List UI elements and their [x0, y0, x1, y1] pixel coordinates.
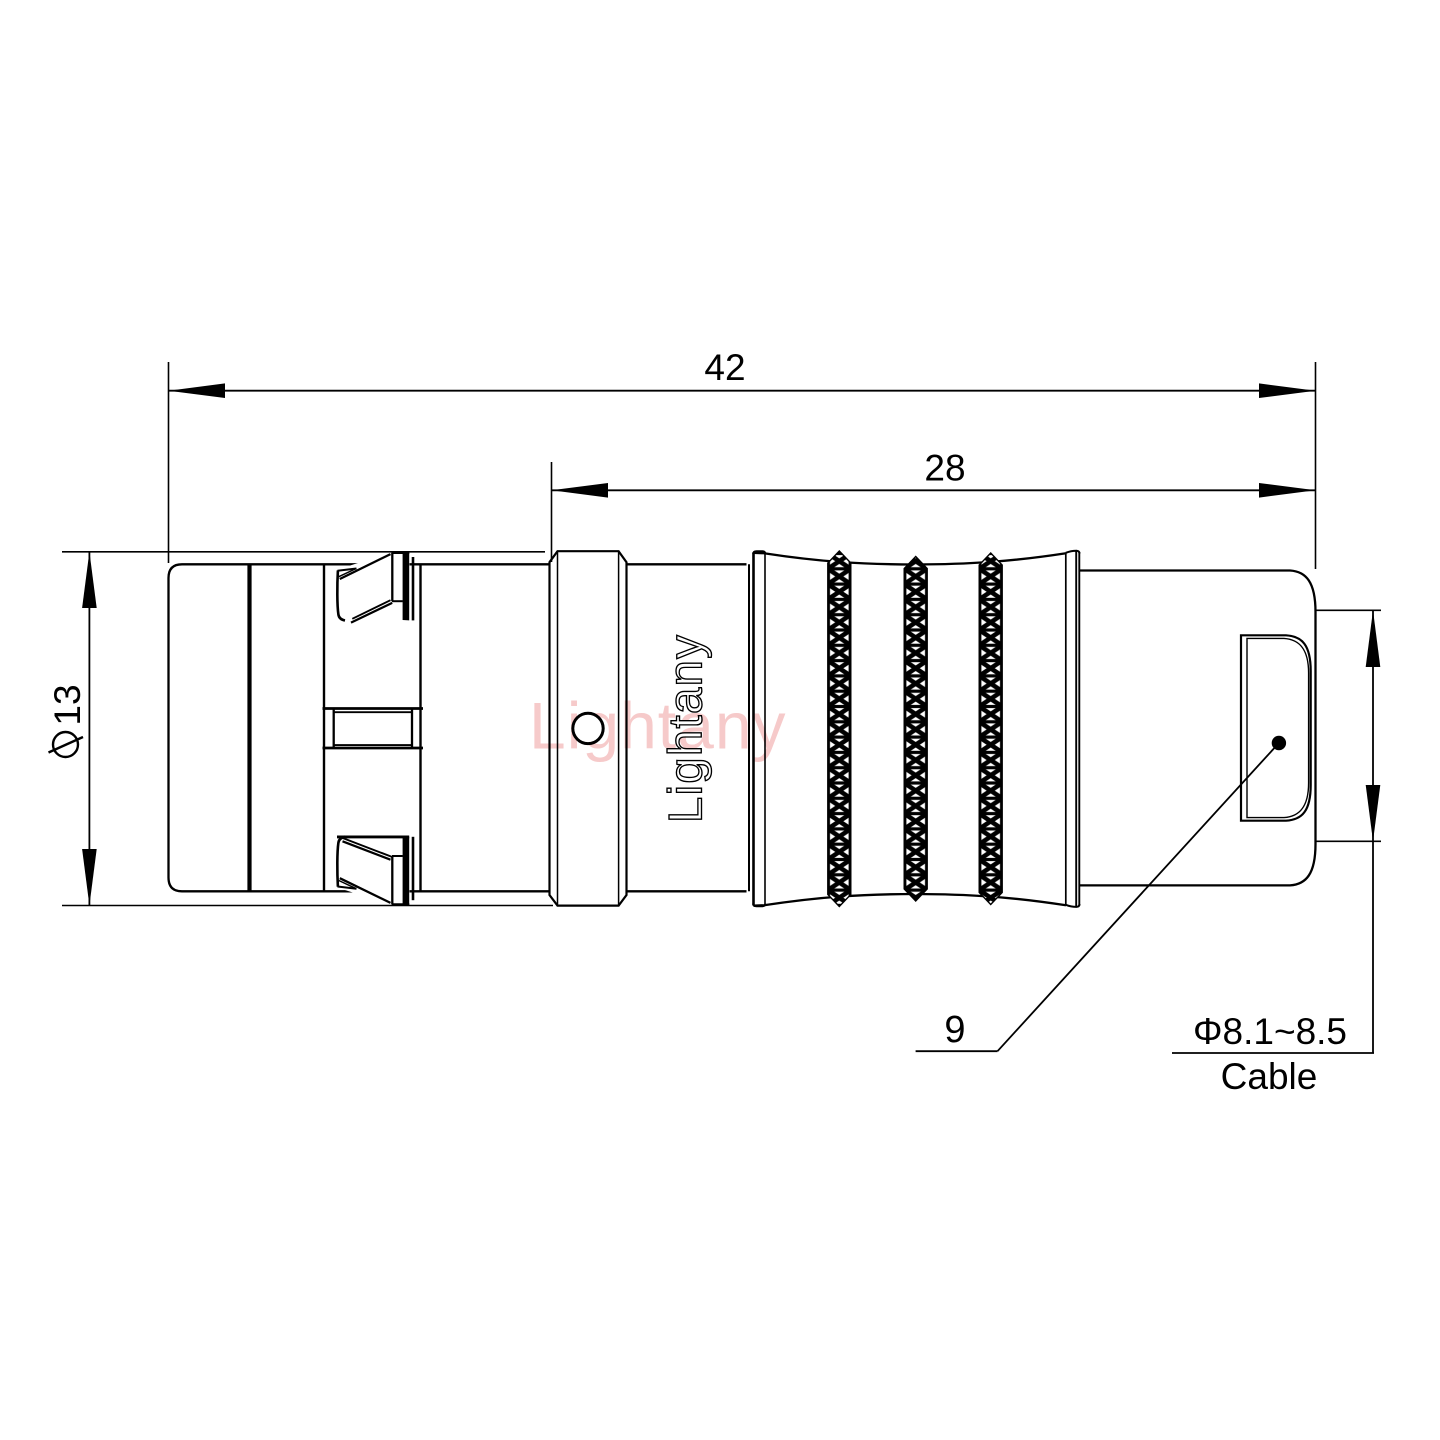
svg-text:13: 13: [47, 684, 88, 725]
svg-text:Cable: Cable: [1221, 1056, 1318, 1097]
svg-text:Lightany: Lightany: [660, 634, 713, 823]
svg-text:Φ8.1~8.5: Φ8.1~8.5: [1193, 1011, 1347, 1052]
svg-text:28: 28: [924, 448, 965, 489]
svg-text:9: 9: [944, 1009, 965, 1051]
svg-text:42: 42: [704, 347, 745, 388]
svg-text:Lightany: Lightany: [529, 689, 787, 763]
